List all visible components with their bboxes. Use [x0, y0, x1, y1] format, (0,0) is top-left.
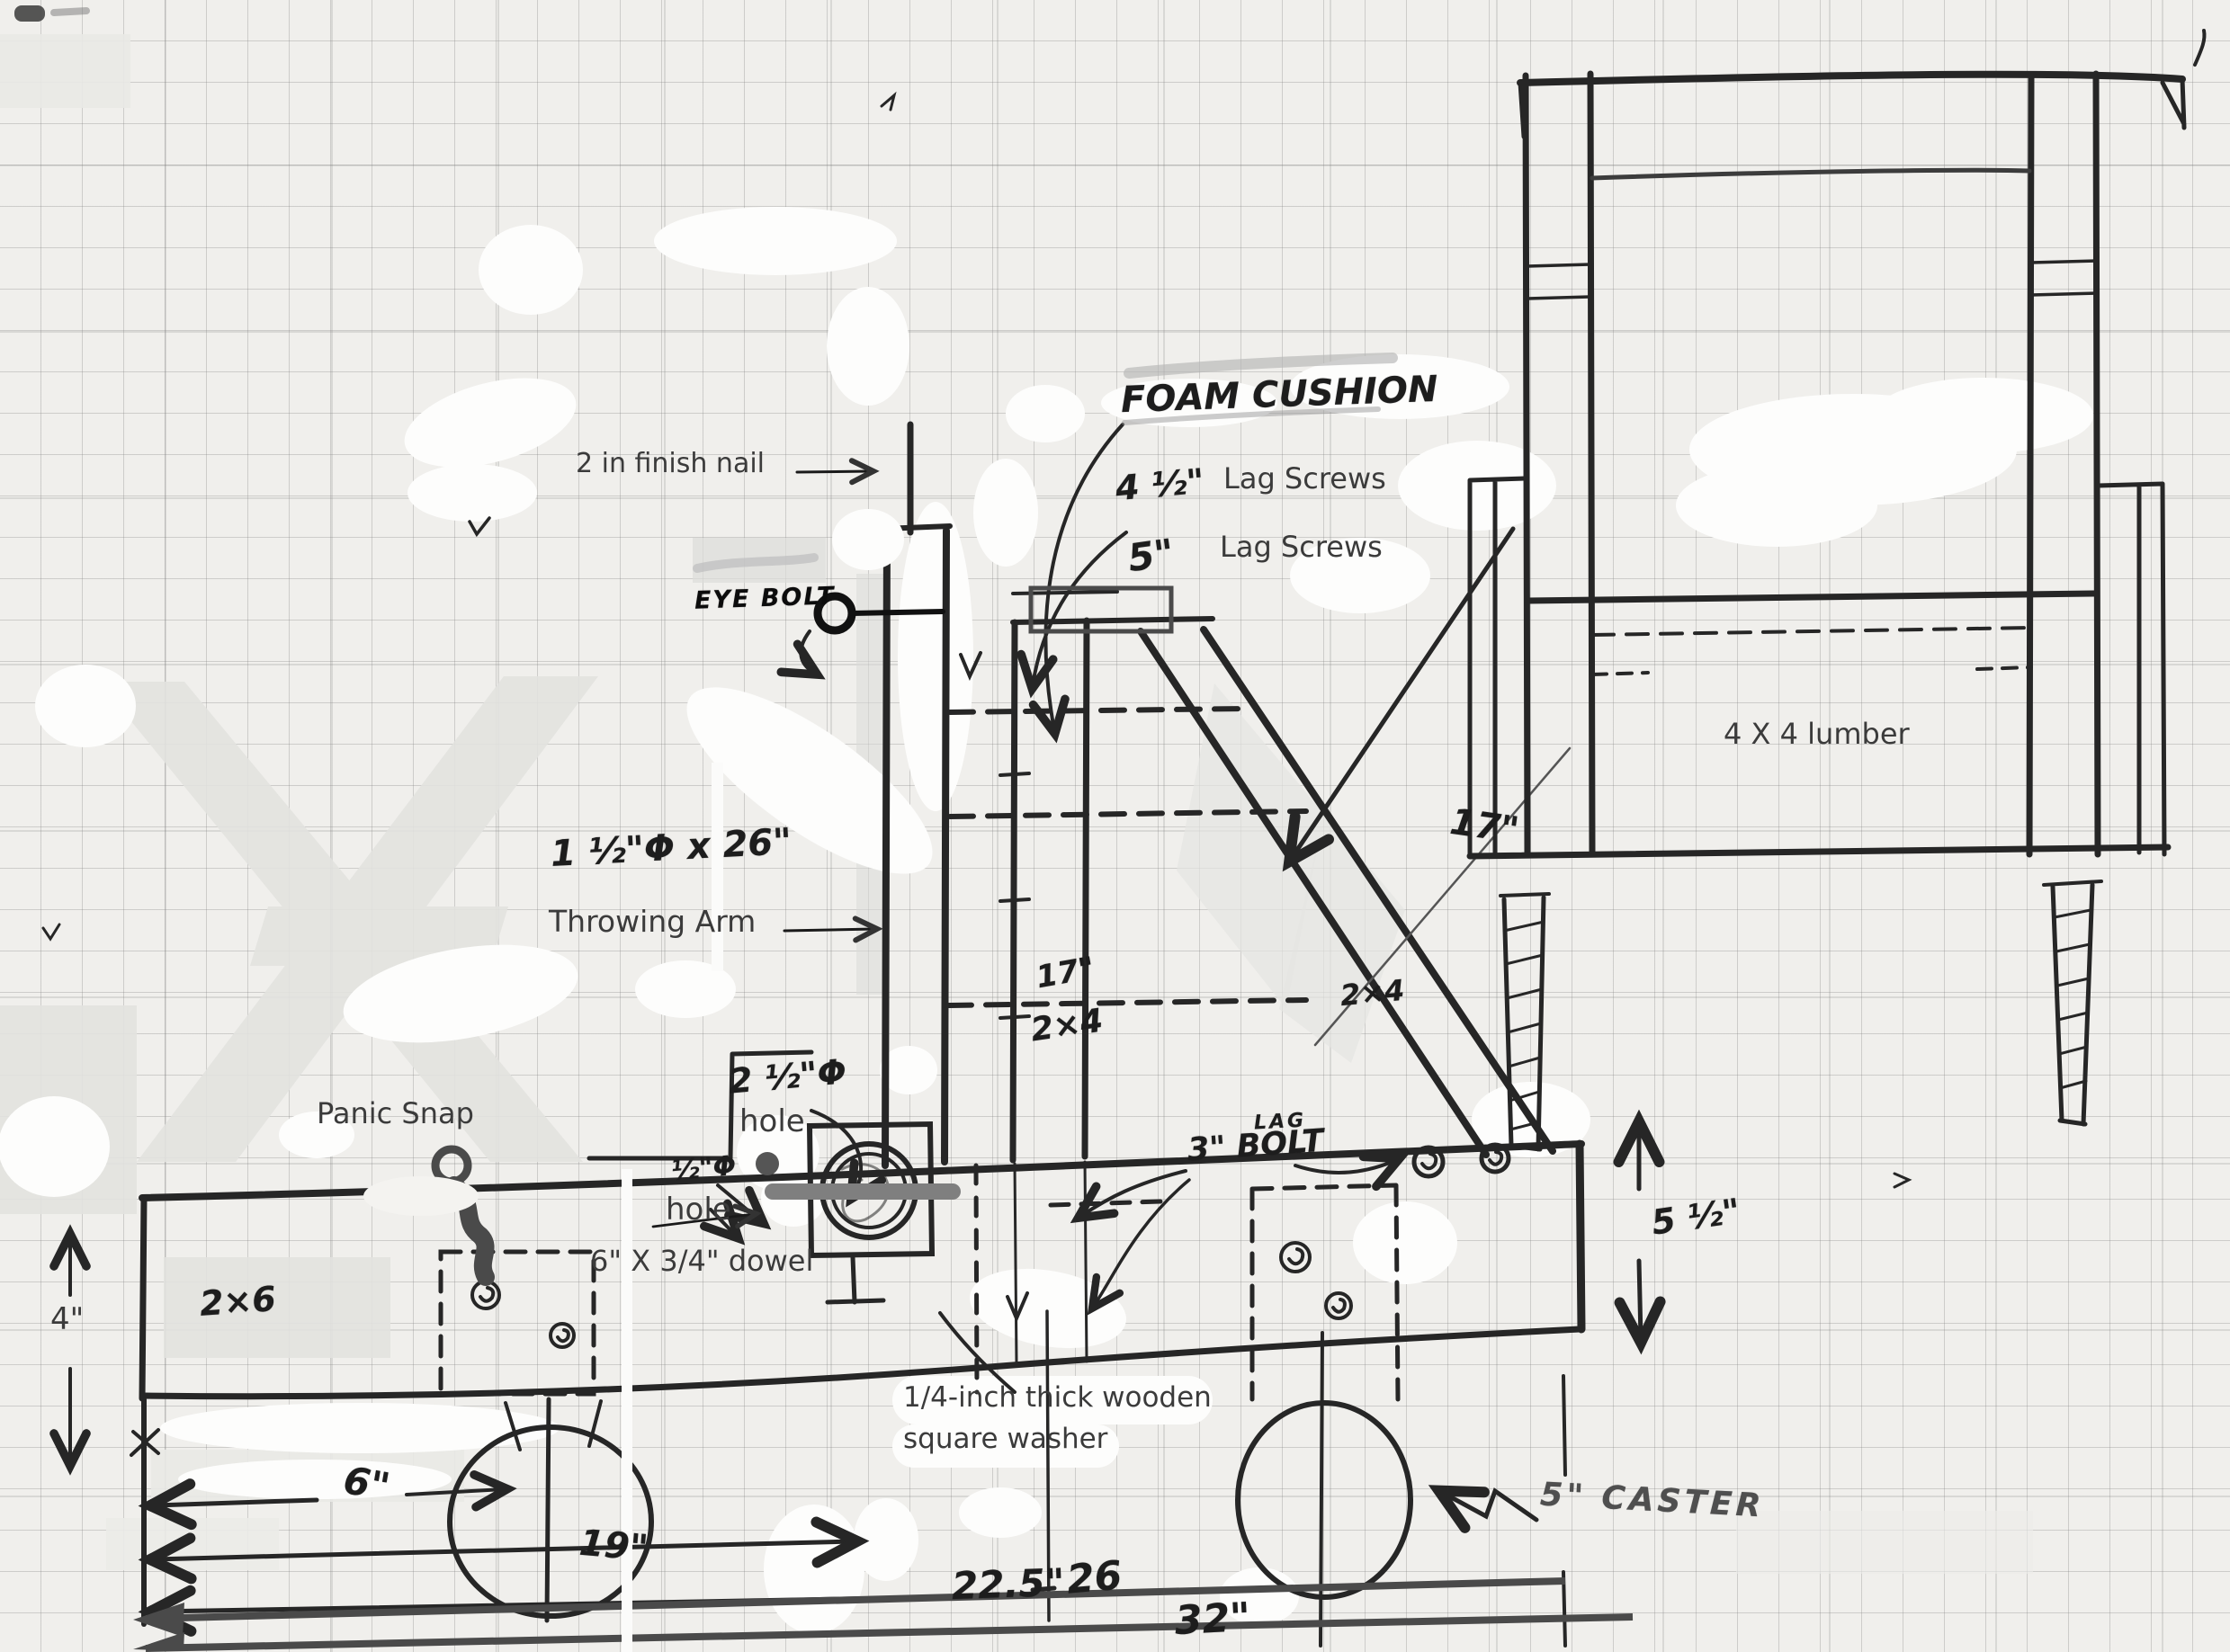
label-dim-6: 6": [341, 1460, 393, 1507]
dim-32-line: [146, 1617, 1633, 1648]
label-finish-nail: 2 in finish nail: [576, 450, 765, 478]
label-dim-4: 4": [50, 1304, 84, 1336]
dowel-bar: [765, 1183, 961, 1200]
label-hole-05-word: hole: [666, 1194, 731, 1227]
label-eye-bolt: EYE BOLT: [694, 584, 836, 614]
label-washer-line2: square washer: [903, 1424, 1107, 1454]
label-lag-screws-45-size: 4 ½": [1114, 464, 1205, 507]
stand-front-view-drawing: [1470, 74, 2184, 1149]
label-panic-snap: Panic Snap: [317, 1099, 474, 1130]
label-dim-225: 22.5": [951, 1563, 1065, 1606]
label-dowel: 6" X 3/4" dowel: [590, 1246, 813, 1277]
label-dim-19: 19": [578, 1524, 649, 1568]
label-lag-screws-5-size: 5": [1125, 533, 1177, 579]
half-inch-hole-dot: [756, 1152, 779, 1175]
label-hole-25-word: hole: [739, 1106, 805, 1139]
label-brace-2x4: 2×4: [1339, 976, 1406, 1012]
label-throwing-arm: Throwing Arm: [549, 906, 756, 938]
label-lag-screws-45: Lag Screws: [1223, 464, 1386, 495]
pivot-washer-drawing: [810, 1124, 1015, 1392]
label-washer-line1: 1/4-inch thick wooden: [903, 1383, 1212, 1413]
label-2x6: 2×6: [199, 1281, 277, 1323]
label-lag-screws-5: Lag Screws: [1220, 532, 1383, 563]
label-hole-05-size: ½"Φ: [670, 1152, 738, 1186]
label-dim-26: 26: [1065, 1555, 1124, 1601]
label-4x4-lumber: 4 X 4 lumber: [1724, 719, 1910, 750]
blueprint-canvas: 2 in finish nail FOAM CUSHION 4 ½" Lag S…: [0, 0, 2230, 1652]
label-dim-32: 32": [1174, 1597, 1251, 1643]
label-dim-17-brace: 17": [1447, 803, 1521, 850]
